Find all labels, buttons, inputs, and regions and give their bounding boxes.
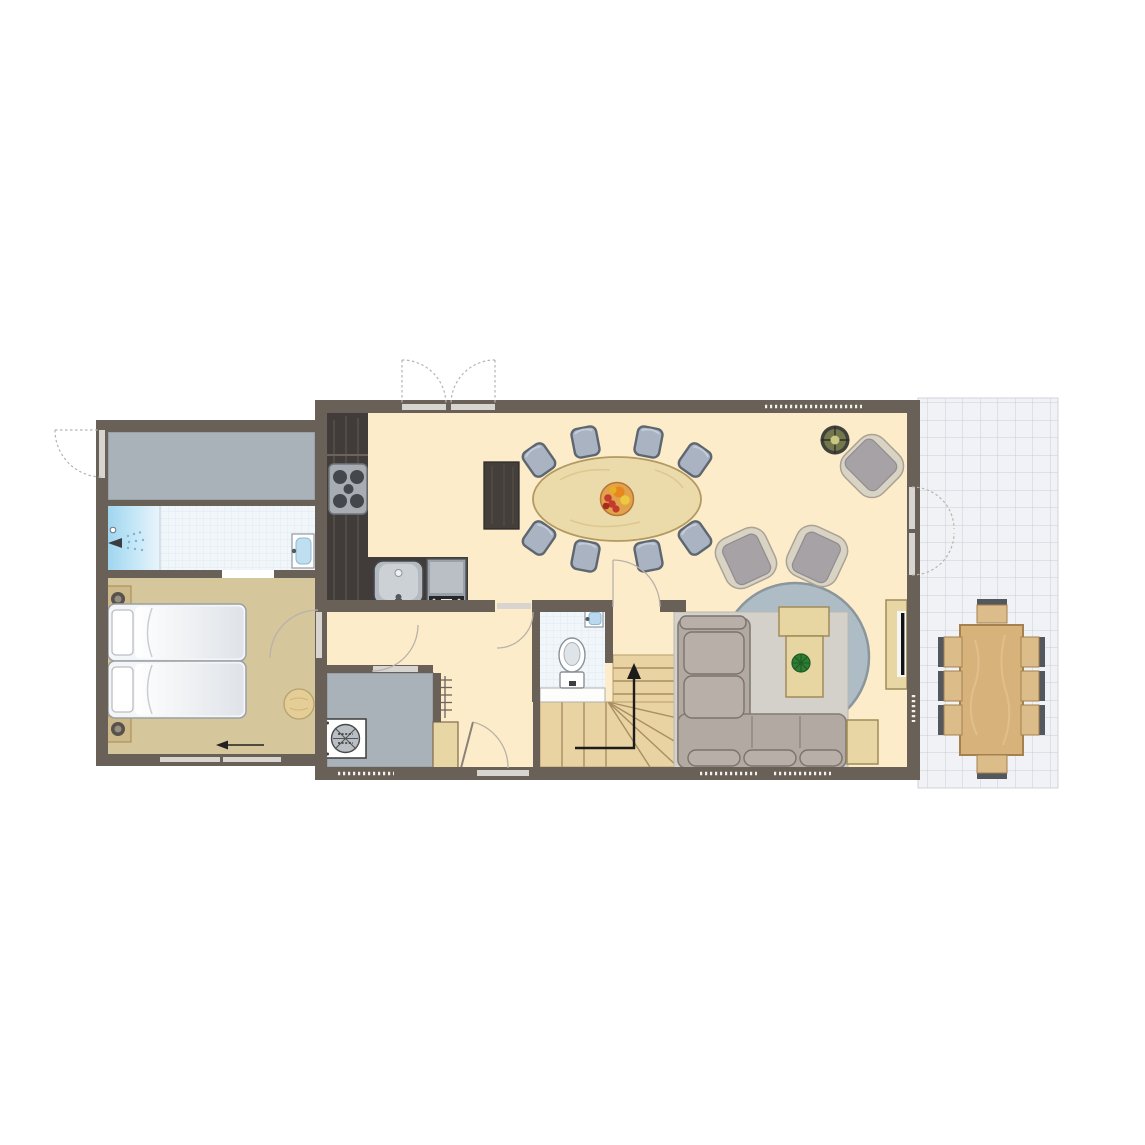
bed	[108, 604, 246, 661]
potted-plant	[821, 426, 850, 455]
terrace-chair	[977, 755, 1007, 779]
storage-exterior-door	[99, 430, 105, 478]
dining-chair	[570, 425, 600, 458]
tv-cabinet	[886, 600, 907, 689]
pouf	[284, 689, 314, 719]
washbasin	[292, 534, 314, 568]
hall-window	[477, 770, 529, 776]
terrace-door-leaf	[909, 533, 915, 575]
terrace	[918, 398, 1058, 788]
toilet-basin	[585, 610, 603, 627]
garden-door-arc	[402, 360, 446, 404]
hall-wardrobe	[433, 722, 458, 768]
terrace-chair	[1021, 705, 1045, 735]
coffee-table	[779, 607, 829, 697]
terrace-chair	[1021, 671, 1045, 701]
toilet	[559, 638, 585, 688]
bedroom-window	[223, 757, 281, 762]
terrace-table	[960, 625, 1023, 755]
terrace-chair	[938, 705, 962, 735]
tv	[901, 613, 904, 675]
fruit-bowl	[601, 483, 634, 516]
floor-plan-page	[0, 0, 1145, 1145]
washing-machine	[325, 719, 366, 758]
dining-chair	[570, 539, 600, 572]
utility-door-leaf	[373, 666, 418, 672]
nightstand	[105, 716, 131, 742]
side-table	[847, 720, 878, 764]
garden-door-right	[451, 404, 495, 410]
dining-chair	[633, 425, 663, 458]
storage-door-arc	[55, 430, 102, 477]
terrace-chair	[938, 671, 962, 701]
kitchen-hall-door-leaf	[497, 603, 531, 609]
terrace-door-leaf	[909, 487, 915, 529]
terrace-chair	[1021, 637, 1045, 667]
bed	[108, 661, 246, 718]
garden-door-arc	[451, 360, 495, 404]
terrace-chair	[938, 637, 962, 667]
floor-plan	[0, 0, 1145, 1145]
bedroom-window	[160, 757, 220, 762]
bedroom-door-leaf	[316, 612, 322, 658]
storage-room-floor	[108, 432, 315, 500]
terrace-chair	[977, 599, 1007, 623]
garden-door-left	[402, 404, 446, 410]
shower-area	[108, 506, 160, 570]
table-plant	[792, 654, 810, 672]
